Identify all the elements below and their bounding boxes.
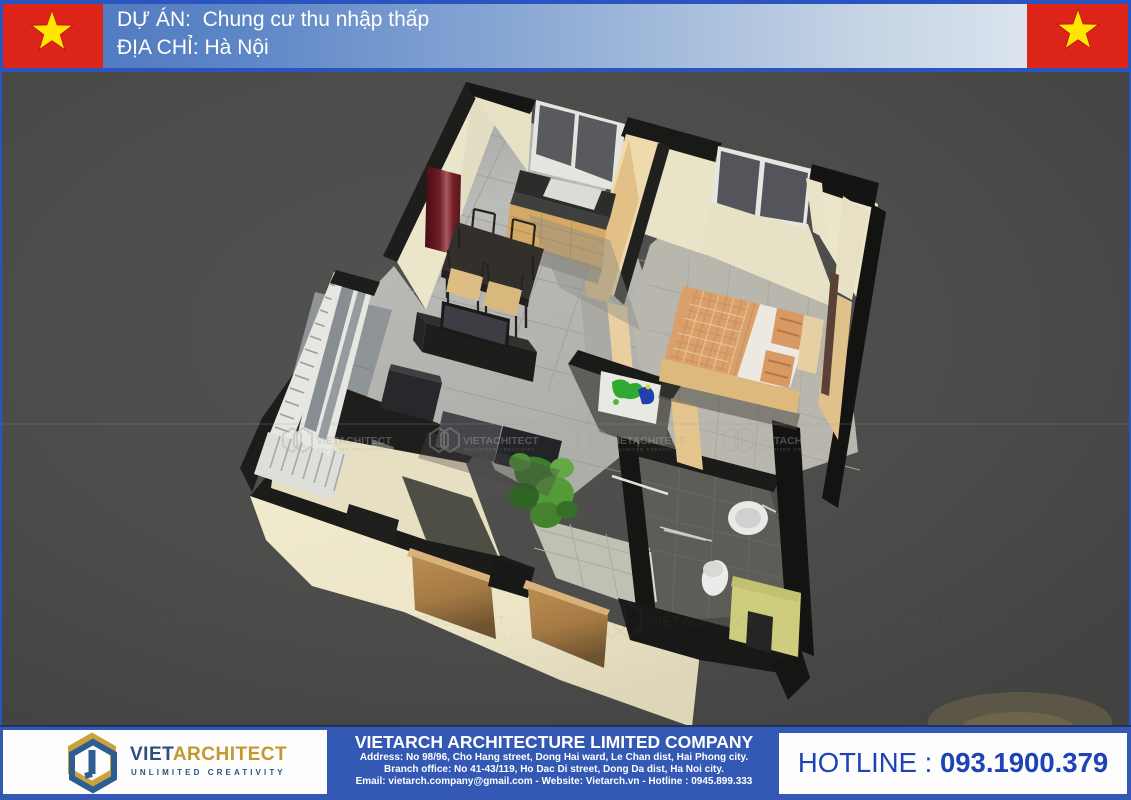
svg-text:UNLIMITED CREATIVITY: UNLIMITED CREATIVITY bbox=[149, 635, 265, 642]
svg-text:VIETACHITECT: VIETACHITECT bbox=[316, 435, 392, 447]
svg-text:UNLIMITED CREATIVITY: UNLIMITED CREATIVITY bbox=[317, 447, 389, 452]
svg-text:VIETACHITECT: VIETACHITECT bbox=[148, 613, 256, 630]
